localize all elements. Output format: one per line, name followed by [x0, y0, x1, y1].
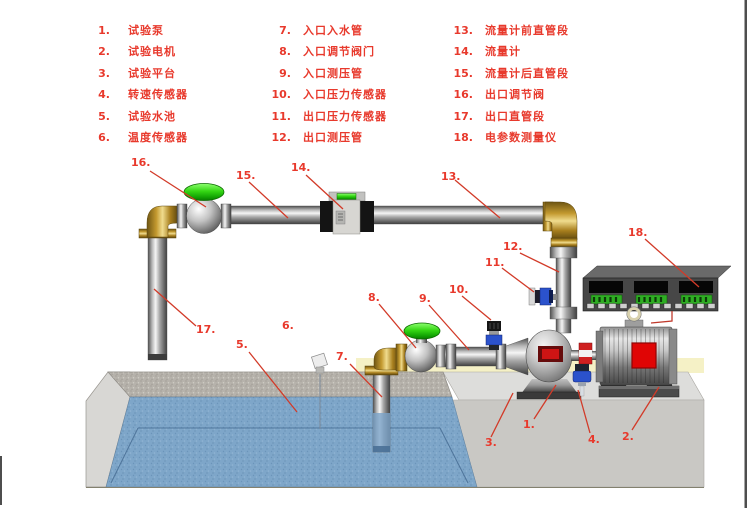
outlet-straight-pipe: [139, 206, 178, 360]
right-border-line: [745, 0, 748, 508]
motor-nameplate: [632, 343, 656, 368]
callout-15: 15.: [236, 170, 256, 181]
callout-7: 7.: [336, 351, 348, 362]
instrument-wire: [651, 311, 672, 323]
valve-handle-green: [404, 323, 440, 339]
pump-test-rig-diagram: 1.试验泵 2.试验电机 3.试验平台 4.转速传感器 5.试验水池 6.温度传…: [0, 0, 748, 508]
valve-handle-green: [184, 184, 224, 201]
test-motor: [596, 307, 679, 397]
callout-13: 13.: [441, 171, 461, 182]
callout-17: 17.: [196, 324, 216, 335]
pump-indicator: [542, 349, 559, 359]
electric-parameter-instrument: [583, 266, 731, 323]
callout-8: 8.: [368, 292, 380, 303]
callout-14: 14.: [291, 162, 311, 173]
callout-11: 11.: [485, 257, 505, 268]
left-border-line: [0, 456, 2, 505]
callout-10: 10.: [449, 284, 469, 295]
outlet-pressure-sensor: [529, 288, 557, 305]
callout-2: 2.: [622, 431, 634, 442]
callout-12: 12.: [503, 241, 523, 252]
diagram-canvas: [0, 0, 748, 508]
callout-16: 16.: [131, 157, 151, 168]
callout-4: 4.: [588, 434, 600, 445]
callout-3: 3.: [485, 437, 497, 448]
water: [106, 397, 477, 487]
callout-18: 18.: [628, 227, 648, 238]
flow-meter: [320, 192, 374, 234]
led-displays: [591, 295, 712, 304]
callout-6: 6.: [282, 320, 294, 331]
callout-5: 5.: [236, 339, 248, 350]
brass-elbow-inlet: [374, 348, 399, 370]
brass-elbow-right: [545, 202, 577, 240]
outlet-pressure-pipe: [543, 202, 577, 333]
inlet-regulating-valve: [404, 323, 446, 372]
outlet-regulating-valve: [177, 184, 231, 234]
callout-1: 1.: [523, 419, 535, 430]
callout-9: 9.: [419, 293, 431, 304]
